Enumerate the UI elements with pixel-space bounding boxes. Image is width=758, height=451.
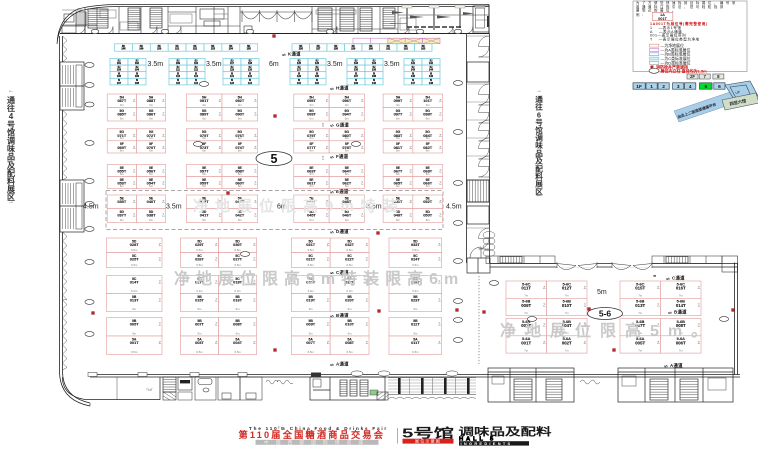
svg-text:032T: 032T [345, 242, 354, 247]
svg-text:6.3m: 6.3m [412, 289, 419, 293]
svg-text:乙: 乙 [254, 169, 257, 173]
svg-text:乙: 乙 [327, 298, 330, 302]
svg-text:乙: 乙 [219, 169, 222, 173]
svg-text:9m: 9m [309, 307, 314, 311]
svg-text:6.5m: 6.5m [308, 350, 315, 354]
svg-text:6.5m: 6.5m [196, 248, 203, 252]
svg-text:010T: 010T [345, 322, 354, 327]
svg-text:151: 151 [175, 48, 180, 51]
svg-text:2: 2 [662, 84, 665, 90]
svg-text:乙: 乙 [162, 145, 165, 149]
svg-text:6.3m: 6.3m [308, 289, 315, 293]
svg-text:6.5m: 6.5m [346, 350, 353, 354]
svg-text:6m: 6m [238, 218, 243, 222]
svg-text:乙: 乙 [253, 322, 256, 326]
svg-text:A通道: A通道 [336, 361, 349, 368]
svg-text:138: 138 [372, 75, 377, 78]
svg-text:7m: 7m [565, 294, 570, 298]
svg-text:6.5m: 6.5m [412, 350, 419, 354]
svg-text:乙: 乙 [361, 169, 364, 173]
svg-text:乙: 乙 [159, 298, 162, 302]
svg-text:乙: 乙 [162, 181, 165, 185]
svg-text:039T: 039T [117, 199, 126, 204]
svg-text:6m: 6m [345, 218, 350, 222]
svg-text:乙: 乙 [409, 133, 412, 137]
svg-text:144: 144 [429, 69, 434, 72]
svg-text:6m: 6m [396, 184, 401, 188]
svg-text:6m: 6m [426, 116, 431, 120]
svg-text:乙: 乙 [327, 322, 330, 326]
svg-text:乙: 乙 [133, 99, 136, 103]
svg-text:乙: 乙 [327, 243, 330, 247]
svg-text:6.5m: 6.5m [196, 263, 203, 267]
svg-text:148: 148 [429, 82, 434, 85]
svg-text:乙: 乙 [409, 181, 412, 185]
svg-text:乙: 乙 [159, 322, 162, 326]
svg-text:乙: 乙 [657, 340, 660, 344]
svg-text:011T: 011T [411, 340, 420, 345]
svg-text:9m: 9m [348, 307, 353, 311]
svg-text:005T: 005T [635, 340, 645, 345]
svg-text:乙: 乙 [361, 145, 364, 149]
svg-text:乙: 乙 [133, 200, 136, 204]
svg-text:012T: 012T [411, 322, 420, 327]
svg-text:157: 157 [316, 48, 321, 51]
svg-text:009T: 009T [521, 303, 531, 308]
svg-text:001T: 001T [658, 16, 667, 21]
svg-text:乙: 乙 [439, 169, 442, 173]
svg-text:037T: 037T [117, 213, 126, 218]
svg-text:007T: 007T [306, 340, 315, 345]
svg-text:乙: 乙 [366, 298, 369, 302]
svg-text:3m: 3m [238, 103, 243, 107]
svg-text:103: 103 [117, 69, 122, 72]
svg-text:6m: 6m [120, 172, 125, 176]
svg-text:052T: 052T [423, 199, 432, 204]
svg-text:乙: 乙 [162, 133, 165, 137]
svg-text:6m: 6m [396, 136, 401, 140]
svg-text:6m: 6m [149, 218, 154, 222]
svg-text:乙: 乙 [326, 112, 329, 116]
svg-text:128: 128 [315, 69, 320, 72]
svg-text:乙: 乙 [409, 213, 412, 217]
svg-text:123: 123 [230, 82, 235, 85]
svg-text:7m: 7m [638, 311, 643, 315]
svg-text:7m: 7m [524, 294, 529, 298]
svg-text:6.5m: 6.5m [131, 248, 138, 252]
svg-text:9m: 9m [132, 307, 137, 311]
svg-text:007T: 007T [195, 322, 204, 327]
svg-text:006T: 006T [676, 340, 686, 345]
svg-text:3.5m: 3.5m [327, 61, 343, 68]
svg-text:133: 133 [354, 62, 359, 65]
svg-text:5m: 5m [597, 289, 607, 296]
svg-text:6.5m: 6.5m [346, 248, 353, 252]
svg-text:1: 1 [650, 84, 653, 90]
svg-text:乙: 乙 [215, 298, 218, 302]
svg-text:乙: 乙 [361, 99, 364, 103]
svg-text:015T: 015T [195, 298, 204, 303]
svg-text:6m: 6m [120, 116, 125, 120]
svg-text:6m: 6m [202, 148, 207, 152]
svg-text:012T: 012T [562, 286, 572, 291]
svg-text:113: 113 [176, 75, 181, 78]
svg-text:010T: 010T [562, 303, 572, 308]
svg-text:6m: 6m [426, 148, 431, 152]
svg-text:乙: 乙 [133, 133, 136, 137]
svg-text:9m: 9m [413, 307, 418, 311]
svg-text:乙: 乙 [438, 341, 441, 345]
svg-text:6m: 6m [345, 116, 350, 120]
svg-text:乙: 乙 [439, 200, 442, 204]
svg-text:6.5m: 6.5m [196, 350, 203, 354]
svg-text:141: 141 [411, 62, 416, 65]
svg-text:展位内立柱 直径均为1.5m: 展位内立柱 直径均为1.5m [660, 67, 708, 73]
svg-text:3m: 3m [202, 103, 207, 107]
svg-text:108: 108 [135, 82, 140, 85]
svg-text:乙: 乙 [409, 99, 412, 103]
svg-text:6.5m: 6.5m [346, 263, 353, 267]
svg-text:7m: 7m [524, 311, 529, 315]
svg-text:7m: 7m [524, 349, 529, 353]
svg-text:149: 149 [139, 48, 144, 51]
svg-text:6m: 6m [426, 172, 431, 176]
svg-text:6: 6 [718, 84, 721, 90]
svg-text:H通道: H通道 [336, 85, 349, 92]
svg-text:6m: 6m [310, 116, 315, 120]
svg-text:乙: 乙 [698, 303, 701, 307]
svg-text:7m: 7m [638, 294, 643, 298]
svg-text:6m: 6m [345, 148, 350, 152]
svg-text:6m: 6m [120, 218, 125, 222]
svg-text:6m: 6m [310, 136, 315, 140]
svg-text:3m: 3m [345, 103, 350, 107]
svg-text:乙: 乙 [584, 303, 587, 307]
svg-text:乙: 乙 [409, 145, 412, 149]
svg-text:乙: 乙 [698, 286, 701, 290]
svg-text:139: 139 [354, 82, 359, 85]
svg-text:9m: 9m [198, 331, 203, 335]
svg-text:153: 153 [211, 48, 216, 51]
svg-text:乙: 乙 [439, 145, 442, 149]
svg-text:71㎡: 71㎡ [146, 387, 152, 392]
svg-text:B通道: B通道 [674, 309, 687, 316]
svg-text:←: ← [536, 192, 542, 198]
svg-text:第110届全国糖酒商品交易会: 第110届全国糖酒商品交易会 [239, 429, 386, 440]
svg-text:乙: 乙 [366, 322, 369, 326]
svg-text:6m: 6m [238, 116, 243, 120]
svg-text:乙: 乙 [326, 181, 329, 185]
svg-text:乙: 乙 [219, 145, 222, 149]
svg-text:111: 111 [176, 69, 181, 72]
svg-text:135: 135 [354, 69, 359, 72]
svg-text:6.5m: 6.5m [308, 248, 315, 252]
svg-text:6m: 6m [396, 218, 401, 222]
svg-text:115: 115 [176, 82, 181, 85]
svg-text:3.5m: 3.5m [166, 204, 182, 211]
svg-text:131: 131 [297, 82, 302, 85]
svg-text:155: 155 [247, 48, 252, 51]
svg-text:乙: 乙 [543, 340, 546, 344]
svg-text:050T: 050T [423, 213, 432, 218]
svg-text:乙: 乙 [438, 243, 441, 247]
svg-text:净地展位限高9m特装: 净地展位限高9m特装 [193, 197, 405, 215]
svg-text:009T: 009T [306, 322, 315, 327]
svg-text:6m: 6m [149, 172, 154, 176]
svg-text:乙: 乙 [254, 99, 257, 103]
svg-text:E通道: E通道 [336, 188, 349, 195]
svg-text:乙: 乙 [657, 286, 660, 290]
svg-text:5: 5 [271, 152, 278, 166]
svg-text:乙: 乙 [162, 112, 165, 116]
svg-text:6m: 6m [149, 116, 154, 120]
svg-text:6.5m: 6.5m [131, 263, 138, 267]
svg-text:乙: 乙 [439, 213, 442, 217]
svg-text:乙: 乙 [159, 243, 162, 247]
svg-text:3m: 3m [310, 103, 315, 107]
svg-text:119: 119 [230, 69, 235, 72]
svg-text:6m: 6m [202, 172, 207, 176]
svg-text:乙: 乙 [698, 340, 701, 344]
svg-text:6m: 6m [269, 61, 279, 68]
svg-text:134: 134 [372, 62, 377, 65]
svg-text:122: 122 [248, 75, 253, 78]
svg-text:140: 140 [372, 82, 377, 85]
svg-text:←: ← [8, 88, 14, 94]
svg-text:乙: 乙 [409, 112, 412, 116]
svg-text:025T: 025T [130, 257, 139, 262]
svg-text:130: 130 [315, 75, 320, 78]
svg-text:乙: 乙 [133, 169, 136, 173]
svg-text:014T: 014T [676, 303, 686, 308]
svg-text:6m: 6m [238, 172, 243, 176]
svg-text:6m: 6m [396, 172, 401, 176]
svg-text:9m: 9m [132, 331, 137, 335]
svg-text:161: 161 [386, 48, 391, 51]
svg-text:乙: 乙 [439, 112, 442, 116]
svg-text:029T: 029T [195, 242, 204, 247]
svg-text:5-6: 5-6 [599, 308, 612, 318]
svg-text:9m: 9m [348, 331, 353, 335]
svg-text:乙: 乙 [326, 145, 329, 149]
svg-text:6m: 6m [238, 136, 243, 140]
svg-text:6m: 6m [426, 218, 431, 222]
svg-text:106: 106 [135, 75, 140, 78]
svg-text:D通道: D通道 [336, 228, 349, 235]
svg-text:152: 152 [193, 48, 198, 51]
svg-text:6m: 6m [345, 184, 350, 188]
svg-text:6m: 6m [238, 184, 243, 188]
svg-text:乙: 乙 [438, 257, 441, 261]
svg-text:150: 150 [157, 48, 162, 51]
svg-text:147: 147 [411, 82, 416, 85]
svg-text:6m: 6m [202, 116, 207, 120]
svg-text:6m: 6m [310, 172, 315, 176]
svg-text:026T: 026T [195, 257, 204, 262]
svg-text:乙: 乙 [215, 257, 218, 261]
svg-text:乙: 乙 [162, 99, 165, 103]
svg-text:净地展位限高5m。: 净地展位限高5m。 [500, 321, 716, 340]
svg-text:例：: 例： [636, 12, 648, 17]
svg-text:101: 101 [117, 62, 122, 65]
svg-text:9m: 9m [413, 331, 418, 335]
svg-text:6.5m: 6.5m [131, 350, 138, 354]
svg-text:136: 136 [372, 69, 377, 72]
svg-text:INGREDIENTS: INGREDIENTS [461, 441, 513, 446]
svg-text:021T: 021T [306, 257, 315, 262]
svg-text:104: 104 [135, 69, 140, 72]
svg-text:乙: 乙 [253, 257, 256, 261]
svg-text:137: 137 [354, 75, 359, 78]
svg-text:001T: 001T [130, 340, 139, 345]
svg-text:004T: 004T [233, 340, 242, 345]
svg-text:乙: 乙 [159, 341, 162, 345]
svg-text:乙: 乙 [133, 145, 136, 149]
svg-text:乙: 乙 [254, 181, 257, 185]
svg-text:6m: 6m [426, 136, 431, 140]
svg-text:乙: 乙 [162, 213, 165, 217]
svg-text:乙: 乙 [219, 133, 222, 137]
svg-text:6m: 6m [238, 148, 243, 152]
svg-text:C通道: C通道 [672, 275, 685, 282]
svg-text:024T: 024T [411, 257, 420, 262]
svg-text:001T: 001T [521, 340, 531, 345]
svg-text:乙: 乙 [361, 133, 364, 137]
svg-text:→: → [536, 88, 542, 94]
svg-text:4.5m: 4.5m [83, 204, 99, 211]
svg-text:乙: 乙 [253, 243, 256, 247]
svg-text:003T: 003T [195, 340, 204, 345]
svg-text:乙: 乙 [253, 341, 256, 345]
svg-text:中国西部国际博览城: 中国西部国际博览城 [264, 439, 370, 446]
svg-text:110: 110 [194, 62, 199, 65]
svg-text:9m: 9m [309, 331, 314, 335]
svg-text:6m: 6m [426, 184, 431, 188]
svg-text:040T: 040T [147, 199, 156, 204]
svg-text:乙: 乙 [438, 322, 441, 326]
svg-text:F通道: F通道 [336, 153, 349, 160]
svg-text:158: 158 [334, 48, 339, 51]
svg-text:3.5m: 3.5m [206, 61, 222, 68]
svg-text:6.3m: 6.3m [196, 289, 203, 293]
svg-text:乙: 乙 [327, 257, 330, 261]
svg-text:6m: 6m [120, 184, 125, 188]
svg-text:9m: 9m [236, 307, 241, 311]
svg-text:125: 125 [297, 62, 302, 65]
svg-text:6m: 6m [345, 172, 350, 176]
svg-text:乙: 乙 [366, 341, 369, 345]
svg-text:乙: 乙 [409, 200, 412, 204]
svg-text:116: 116 [194, 82, 199, 85]
svg-text:033T: 033T [411, 242, 420, 247]
svg-text:净地展位限高9m特装限高6m: 净地展位限高9m特装限高6m [174, 269, 464, 288]
svg-text:160: 160 [369, 48, 374, 51]
svg-text:008T: 008T [233, 322, 242, 327]
svg-text:6m: 6m [202, 184, 207, 188]
svg-text:126: 126 [315, 62, 320, 65]
svg-text:6m: 6m [310, 148, 315, 152]
svg-text:乙: 乙 [159, 257, 162, 261]
svg-text:117: 117 [230, 62, 235, 65]
svg-text:027T: 027T [233, 257, 242, 262]
svg-text:107: 107 [117, 82, 122, 85]
svg-text:乙: 乙 [326, 99, 329, 103]
svg-text:3.5m: 3.5m [384, 61, 400, 68]
svg-text:127: 127 [297, 69, 302, 72]
svg-text:乙: 乙 [162, 200, 165, 204]
svg-text:7m: 7m [565, 311, 570, 315]
svg-text:乙: 乙 [584, 286, 587, 290]
svg-text:乙: 乙 [219, 112, 222, 116]
svg-text:6m: 6m [202, 136, 207, 140]
svg-text:T —表示展位类型为净地: T —表示展位类型为净地 [650, 36, 700, 41]
svg-text:1F: 1F [636, 84, 642, 90]
svg-text:121: 121 [230, 75, 235, 78]
svg-text:G通道: G通道 [336, 121, 349, 128]
svg-text:乙: 乙 [254, 145, 257, 149]
svg-text:6.5m: 6.5m [234, 263, 241, 267]
svg-text:乙: 乙 [162, 169, 165, 173]
svg-text:146: 146 [429, 75, 434, 78]
svg-text:乙: 乙 [584, 340, 587, 344]
svg-text:乙: 乙 [439, 133, 442, 137]
svg-text:124: 124 [248, 82, 253, 85]
svg-text:→: → [8, 199, 14, 205]
svg-text:154: 154 [229, 48, 234, 51]
svg-text:3m: 3m [149, 103, 154, 107]
svg-text:013T: 013T [130, 298, 139, 303]
svg-text:162: 162 [404, 48, 409, 51]
svg-text:乙: 乙 [219, 181, 222, 185]
svg-text:2F: 2F [690, 74, 695, 79]
svg-text:3m: 3m [426, 103, 431, 107]
svg-text:019T: 019T [306, 298, 315, 303]
svg-text:023T: 023T [411, 298, 420, 303]
svg-text:008T: 008T [345, 340, 354, 345]
svg-text:031T: 031T [306, 242, 315, 247]
svg-text:乙: 乙 [133, 112, 136, 116]
svg-text:乙: 乙 [219, 99, 222, 103]
svg-text:142: 142 [429, 62, 434, 65]
svg-text:乙: 乙 [366, 257, 369, 261]
svg-text:乙: 乙 [543, 286, 546, 290]
svg-text:114: 114 [194, 75, 199, 78]
svg-text:乙: 乙 [215, 341, 218, 345]
svg-text:109: 109 [176, 62, 181, 65]
svg-text:102: 102 [135, 62, 140, 65]
svg-text:6.5m: 6.5m [412, 248, 419, 252]
svg-text:011T: 011T [521, 286, 531, 291]
svg-text:6m: 6m [120, 148, 125, 152]
svg-text:129: 129 [297, 75, 302, 78]
svg-text:7m: 7m [638, 349, 643, 353]
svg-text:038T: 038T [147, 213, 156, 218]
svg-text:乙: 乙 [215, 243, 218, 247]
svg-text:6.3m: 6.3m [234, 289, 241, 293]
svg-text:7m: 7m [679, 294, 684, 298]
svg-text:016T: 016T [233, 298, 242, 303]
svg-text:6m: 6m [310, 218, 315, 222]
svg-text:016T: 016T [676, 286, 686, 291]
svg-text:022T: 022T [345, 257, 354, 262]
svg-text:6.3m: 6.3m [131, 289, 138, 293]
svg-text:3m: 3m [120, 103, 125, 107]
svg-text:4.5m: 4.5m [446, 204, 462, 211]
svg-text:6m: 6m [310, 184, 315, 188]
svg-text:145: 145 [411, 75, 416, 78]
svg-text:6m: 6m [149, 148, 154, 152]
svg-text:6m: 6m [149, 184, 154, 188]
